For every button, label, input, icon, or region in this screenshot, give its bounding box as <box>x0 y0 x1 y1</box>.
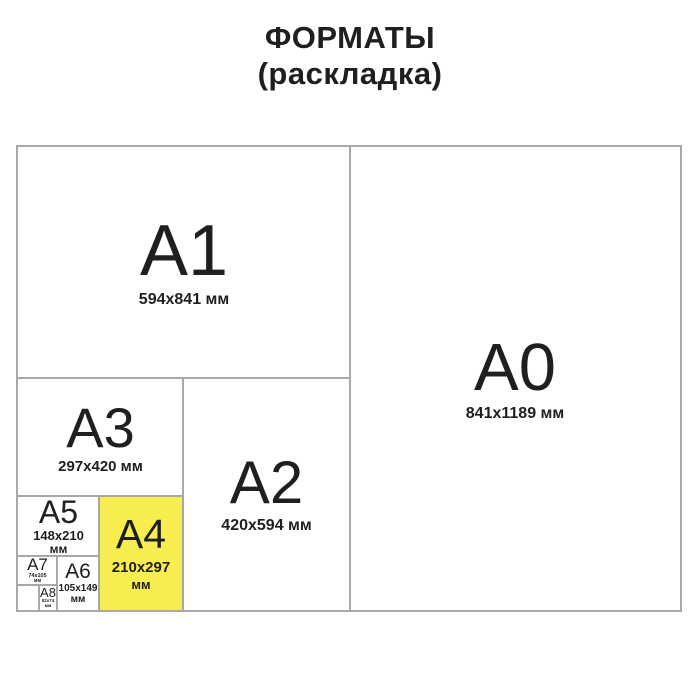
format-a6-sheet: A6 105x149 мм <box>57 556 99 610</box>
divider-a8-left <box>38 584 40 610</box>
format-a3-label: A3 <box>66 400 135 456</box>
format-a0-dimensions: 841x1189 мм <box>466 404 564 423</box>
format-a0-label: A0 <box>474 334 556 401</box>
divider-a3-bottom <box>18 495 184 497</box>
format-a8-sheet: A8 52x74 мм <box>39 585 57 610</box>
format-a2-dimensions: 420x594 мм <box>221 516 311 535</box>
format-a4-label: A4 <box>116 514 166 555</box>
divider-a3-a2 <box>182 377 184 610</box>
format-a4-sheet-highlighted: A4 210x297 мм <box>99 496 183 610</box>
divider-a5-a4 <box>98 495 100 610</box>
divider-a1-bottom <box>18 377 351 379</box>
format-a7-sheet: A7 74x105 мм <box>18 556 57 585</box>
format-a4-unit: мм <box>131 577 150 593</box>
format-a2-label: A2 <box>230 453 303 513</box>
format-a1-label: A1 <box>140 215 228 287</box>
format-a8-unit: мм <box>45 604 52 609</box>
format-a0-sheet: A0 841x1189 мм <box>350 147 680 610</box>
format-a4-dimensions: 210x297 <box>112 559 170 577</box>
divider-a5-bottom <box>18 555 100 557</box>
title-line-1: ФОРМАТЫ <box>0 20 700 56</box>
format-a1-dimensions: 594x841 мм <box>139 290 229 309</box>
format-a7-label: A7 <box>27 556 48 573</box>
format-a2-sheet: A2 420x594 мм <box>183 378 350 610</box>
title-line-2: (раскладка) <box>0 56 700 92</box>
format-a6-label: A6 <box>65 561 91 582</box>
page: ФОРМАТЫ (раскладка) A1 594x841 мм A0 841… <box>0 0 700 700</box>
format-a3-sheet: A3 297x420 мм <box>18 378 183 497</box>
page-title: ФОРМАТЫ (раскладка) <box>0 20 700 92</box>
divider-a7-a6 <box>56 555 58 610</box>
format-a1-sheet: A1 594x841 мм <box>18 147 350 378</box>
paper-formats-diagram: A1 594x841 мм A0 841x1189 мм A3 297x420 … <box>16 145 682 612</box>
format-a5-dimensions: 148x210 <box>33 529 84 543</box>
format-a5-label: A5 <box>39 496 78 528</box>
format-a3-dimensions: 297x420 мм <box>58 458 143 476</box>
format-a5-sheet: A5 148x210 мм <box>18 496 99 556</box>
format-a6-unit: мм <box>71 594 86 606</box>
format-a6-dimensions: 105x149 <box>59 583 98 595</box>
